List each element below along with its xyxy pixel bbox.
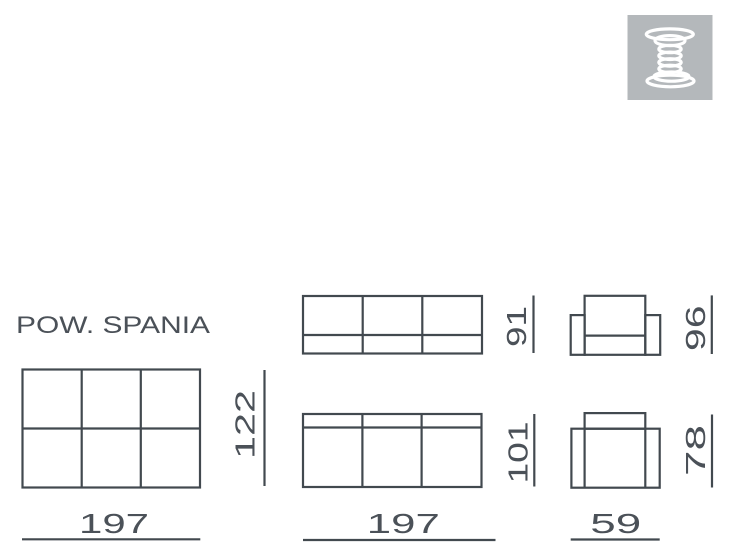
svg-text:59: 59 xyxy=(590,508,641,539)
svg-text:91: 91 xyxy=(501,306,532,347)
svg-text:96: 96 xyxy=(680,306,711,352)
svg-text:197: 197 xyxy=(367,508,440,539)
svg-text:78: 78 xyxy=(680,425,711,476)
svg-text:122: 122 xyxy=(229,390,260,459)
svg-text:POW. SPANIA: POW. SPANIA xyxy=(16,313,210,339)
svg-text:197: 197 xyxy=(79,508,149,539)
svg-text:101: 101 xyxy=(502,422,533,484)
